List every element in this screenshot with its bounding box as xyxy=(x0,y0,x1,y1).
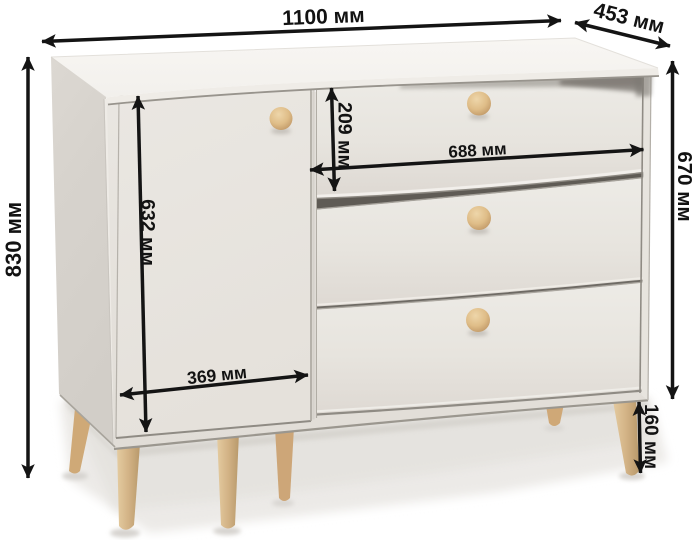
svg-text:688 мм: 688 мм xyxy=(448,139,507,162)
svg-text:160 мм: 160 мм xyxy=(640,404,661,469)
svg-text:830 мм: 830 мм xyxy=(1,202,26,277)
svg-text:670 мм: 670 мм xyxy=(673,151,696,221)
svg-text:453 мм: 453 мм xyxy=(591,0,666,38)
svg-text:632 мм: 632 мм xyxy=(137,199,159,266)
svg-text:209 мм: 209 мм xyxy=(334,102,356,169)
svg-text:1100 мм: 1100 мм xyxy=(282,4,365,30)
